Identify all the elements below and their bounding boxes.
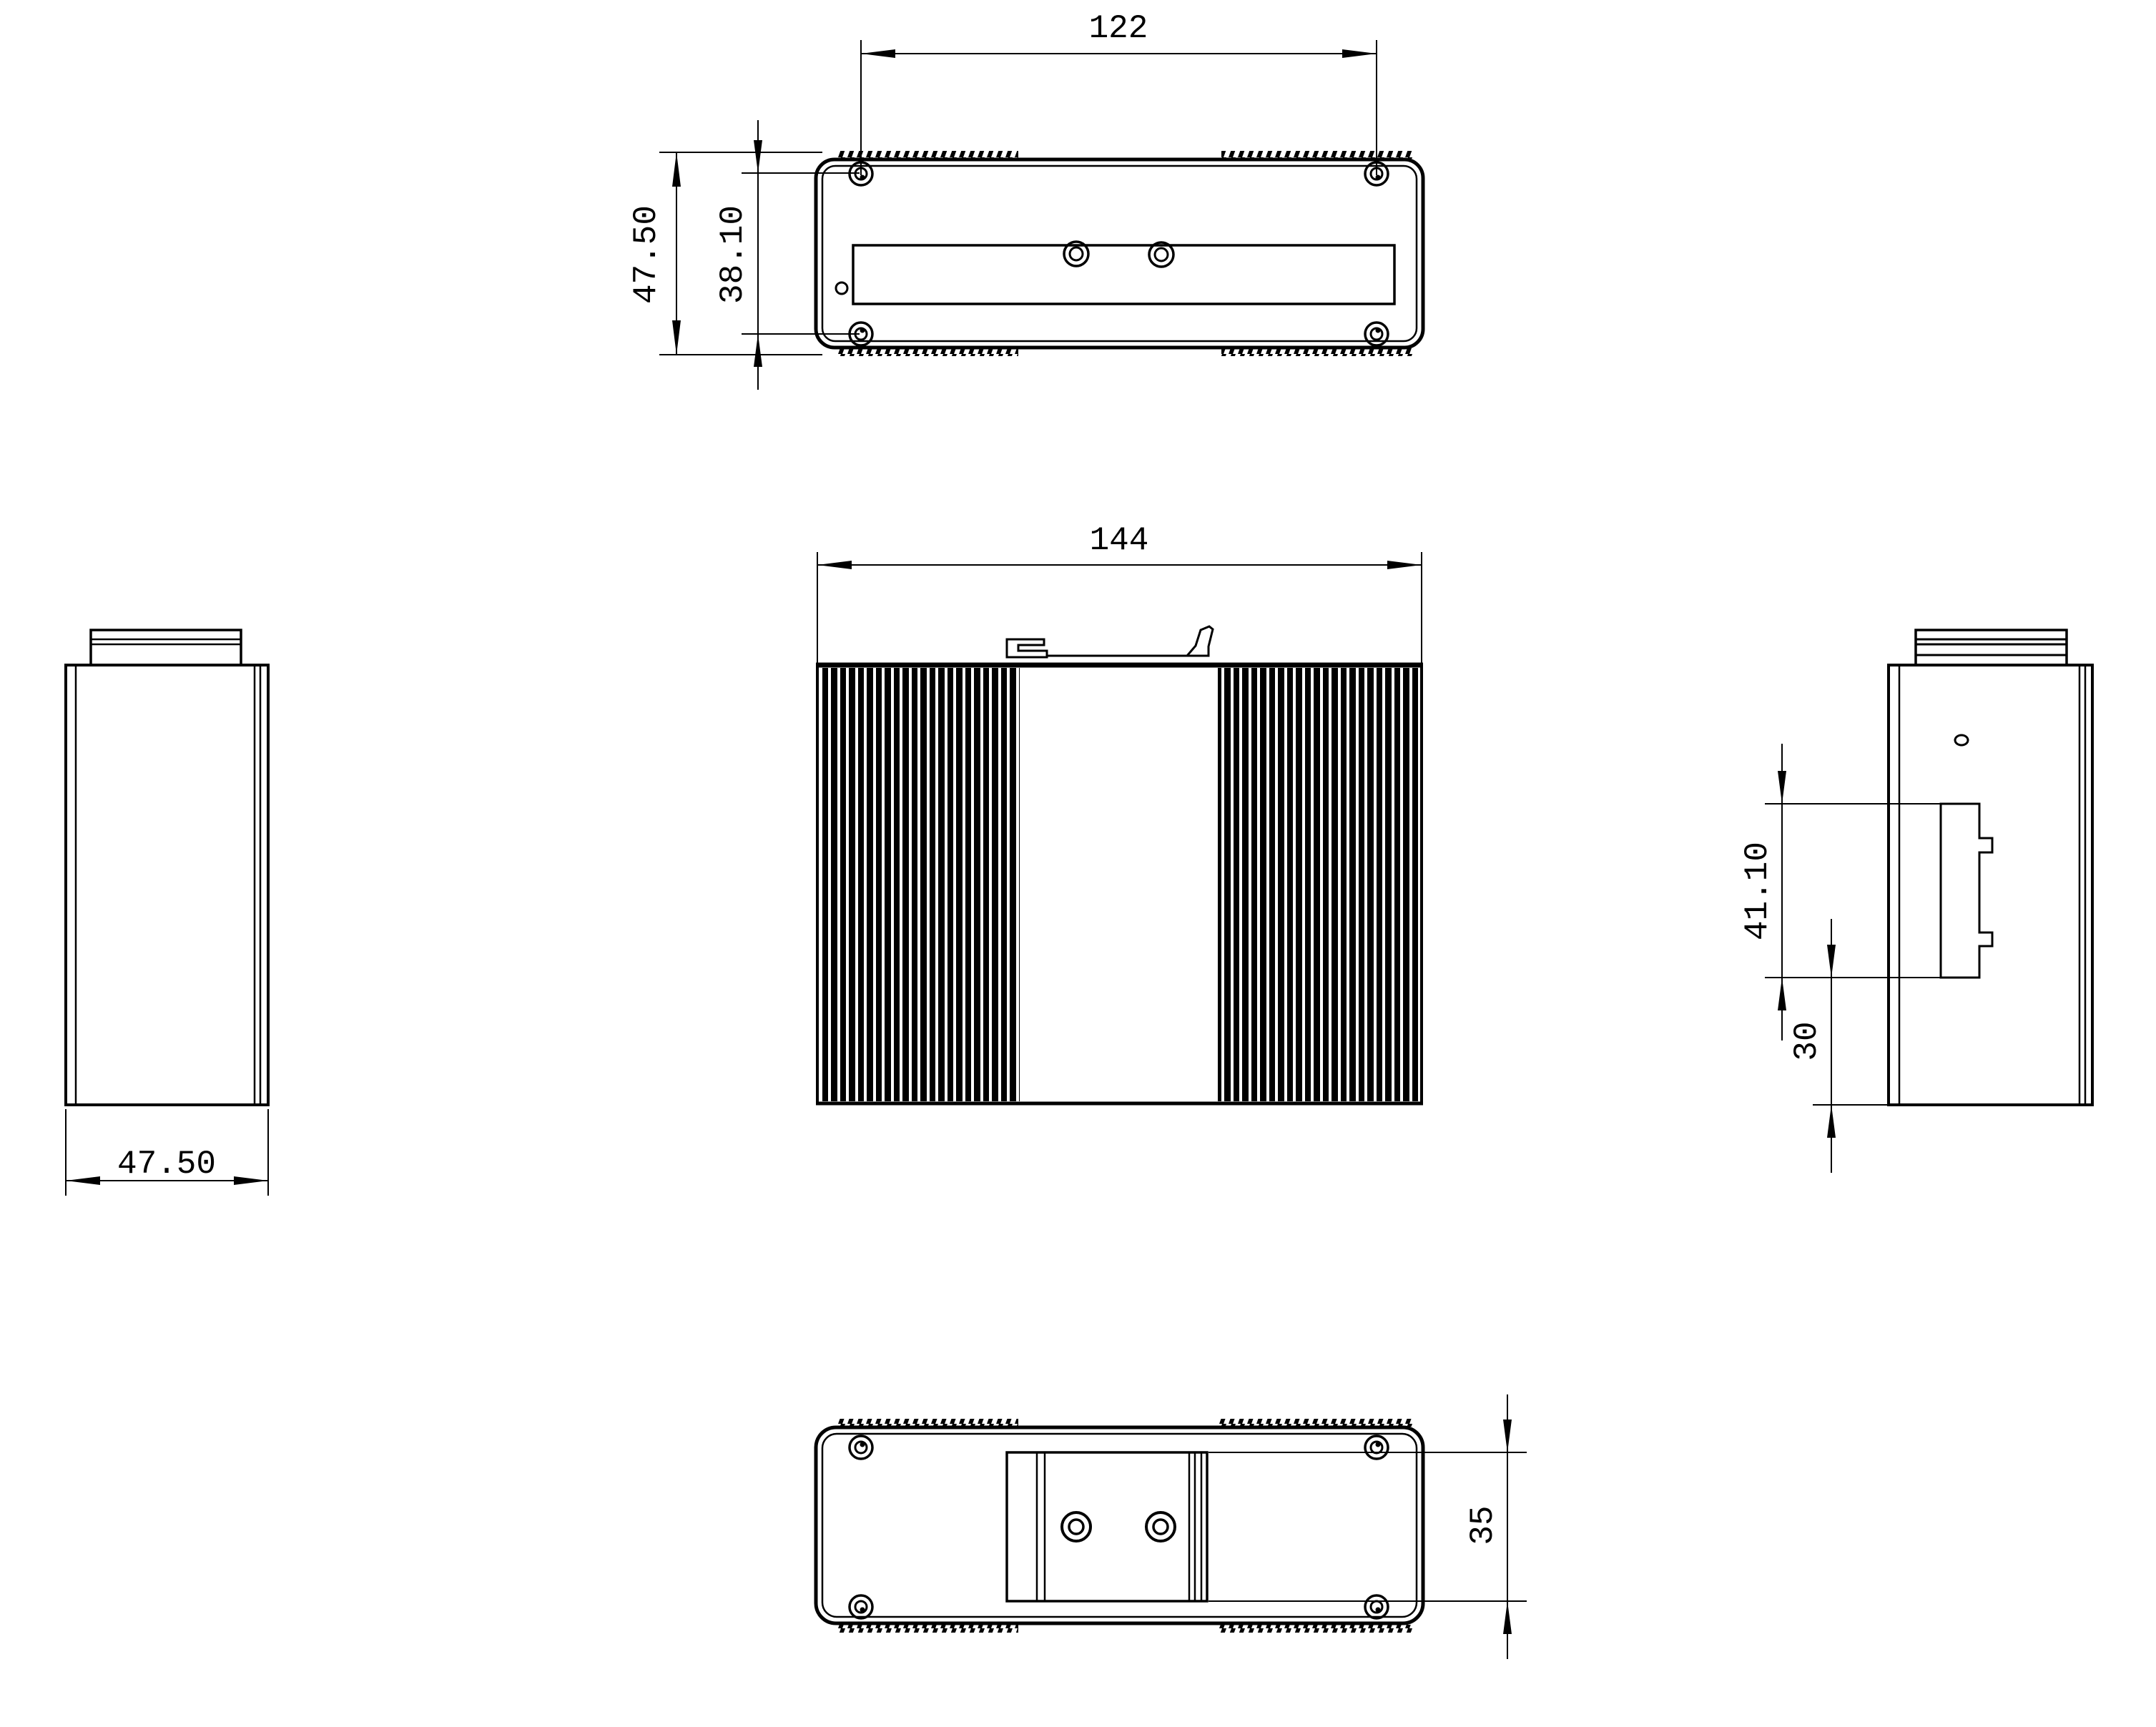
cap-outline <box>91 630 241 665</box>
serration-band-top-left <box>837 1419 1018 1427</box>
enclosure-outline <box>816 159 1423 348</box>
cap-outline <box>1916 630 2067 665</box>
dimension-144: 144 <box>817 522 1422 665</box>
serration-band-bottom-right <box>1217 1625 1414 1633</box>
body-outline <box>1889 665 2092 1105</box>
fins-left <box>819 668 1020 1101</box>
serration-band-bottom-left <box>837 348 1018 356</box>
serration-band-top-right <box>1221 151 1414 159</box>
dimension-label-122: 122 <box>1089 10 1148 47</box>
drawing-canvas: 122 47.50 38.10 47.50 <box>0 0 2156 1727</box>
dimension-left-47-50: 47.50 <box>66 1109 268 1196</box>
clip-hook <box>1187 626 1213 656</box>
right-side-view <box>1889 630 2092 1105</box>
dimension-30: 30 <box>1788 919 1889 1173</box>
serration-band-bottom-right <box>1221 348 1414 356</box>
serration-band-top-right <box>1217 1419 1414 1427</box>
dimension-122: 122 <box>861 10 1377 175</box>
din-rail-clip <box>1007 626 1213 657</box>
clip-spring <box>1007 639 1047 657</box>
dimension-label-38-10: 38.10 <box>714 205 752 304</box>
body-outline <box>66 665 268 1105</box>
dimension-label-144: 144 <box>1090 522 1149 559</box>
five-view-cad-drawing: 122 47.50 38.10 47.50 <box>0 0 2156 1727</box>
front-view <box>816 626 1423 1103</box>
dimension-label-41-10: 41.10 <box>1739 842 1776 940</box>
dimension-label-47-50-top: 47.50 <box>628 205 665 304</box>
serration-band-bottom-left <box>837 1625 1018 1633</box>
top-view <box>816 151 1423 356</box>
dimension-label-30: 30 <box>1788 1021 1826 1061</box>
extension-lines <box>817 552 1422 665</box>
dimension-label-47-50-left: 47.50 <box>117 1146 216 1183</box>
left-side-view <box>66 630 268 1105</box>
dimension-label-35: 35 <box>1465 1505 1502 1545</box>
fins-right <box>1218 668 1419 1101</box>
serration-band-top-left <box>837 151 1018 159</box>
